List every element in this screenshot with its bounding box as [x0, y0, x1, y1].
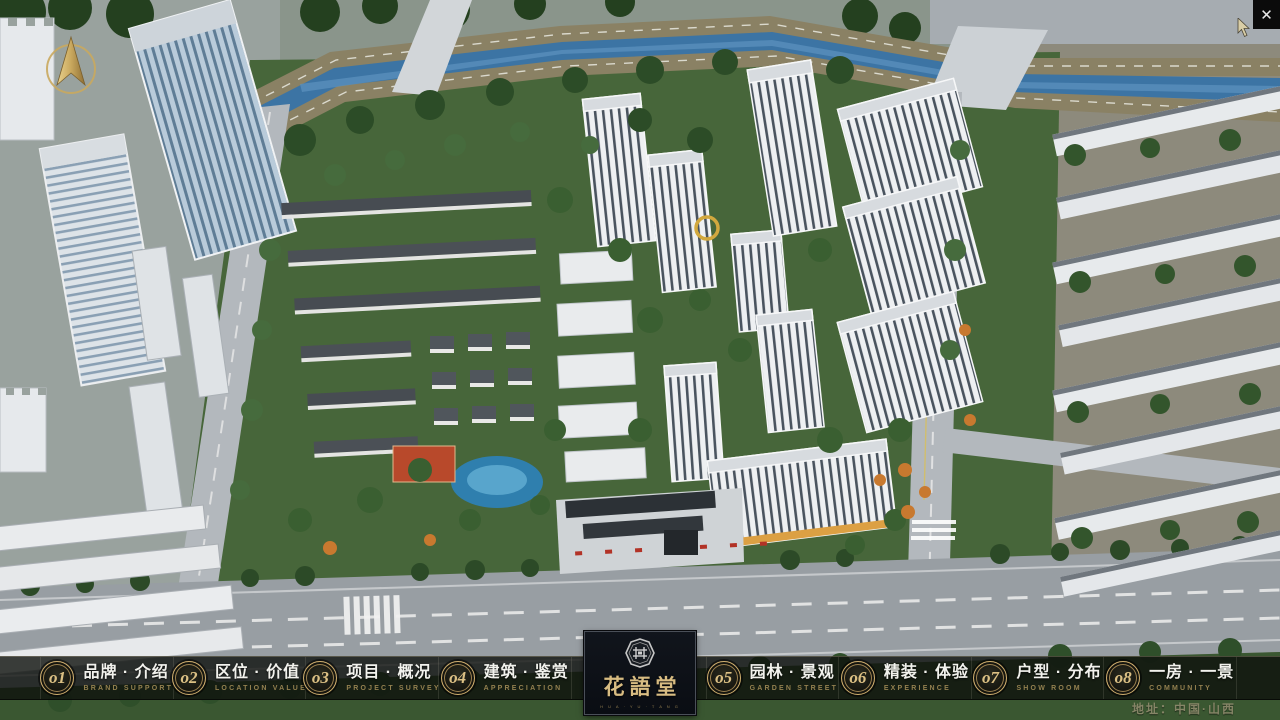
menu-num-badge-08: o8 [1106, 661, 1140, 695]
menu-item-brand[interactable]: o1 品牌 · 介绍 BRAND SUPPORT [40, 657, 173, 699]
menu-item-floorplan[interactable]: o7 户型 · 分布 SHOW ROOM [971, 657, 1104, 699]
menu-num-badge-07: o7 [973, 661, 1007, 695]
menu-item-garden[interactable]: o5 园林 · 景观 GARDEN STREET [706, 657, 839, 699]
menu-label-en: GARDEN STREET [750, 685, 839, 692]
menu-num-badge-04: o4 [441, 661, 475, 695]
menu-label-zh: 精装 · 体验 [884, 665, 969, 681]
menu-label-zh: 项目 · 概况 [346, 665, 431, 681]
project-logo-tagline: H U A · Y U · T A N G [600, 704, 680, 709]
menu-item-location[interactable]: o2 区位 · 价值 LOCATION VALUE [173, 657, 306, 699]
seal-emblem-icon [625, 638, 655, 668]
menu-label-zh: 品牌 · 介绍 [83, 665, 168, 681]
menu-item-interior[interactable]: o6 精装 · 体验 EXPERIENCE [838, 657, 971, 699]
compass-north-icon [41, 33, 101, 99]
project-address: 地址：中国·山西 [1132, 700, 1236, 717]
menu-label-zh: 园林 · 景观 [750, 665, 835, 681]
menu-label-zh: 建筑 · 鉴赏 [484, 665, 569, 681]
menu-label-en: PROJECT SURVEY [346, 685, 440, 692]
menu-item-project[interactable]: o3 项目 · 概况 PROJECT SURVEY [305, 657, 438, 699]
menu-label-en: SHOW ROOM [1016, 685, 1081, 692]
close-button[interactable]: ✕ [1253, 0, 1280, 29]
menu-num-badge-03: o3 [303, 661, 337, 695]
menu-item-architecture[interactable]: o4 建筑 · 鉴赏 APPRECIATION [438, 657, 571, 699]
menu-label-en: LOCATION VALUE [215, 685, 307, 692]
aerial-site-render [0, 0, 1280, 720]
menu-label-zh: 户型 · 分布 [1016, 665, 1101, 681]
menu-num-badge-02: o2 [172, 661, 206, 695]
bar-spacer-left [0, 657, 40, 699]
menu-label-en: EXPERIENCE [884, 685, 951, 692]
menu-label-en: APPRECIATION [484, 685, 563, 692]
close-icon: ✕ [1260, 6, 1273, 24]
menu-label-zh: 区位 · 价值 [215, 665, 300, 681]
menu-num-badge-05: o5 [707, 661, 741, 695]
project-logo-panel[interactable]: 花語堂 H U A · Y U · T A N G [584, 631, 696, 715]
menu-label-zh: 一房 · 一景 [1149, 665, 1234, 681]
menu-label-en: BRAND SUPPORT [83, 685, 173, 692]
menu-num-badge-06: o6 [841, 661, 875, 695]
project-logo-title: 花語堂 [599, 671, 682, 701]
menu-num-badge-01: o1 [40, 661, 74, 695]
bar-spacer-right [1236, 657, 1280, 699]
presentation-stage: ✕ o1 品牌 · 介绍 BRAND SUPPORT o2 区位 · 价值 LO… [0, 0, 1280, 720]
menu-item-community[interactable]: o8 一房 · 一景 COMMUNITY [1103, 657, 1236, 699]
menu-label-en: COMMUNITY [1149, 685, 1212, 692]
